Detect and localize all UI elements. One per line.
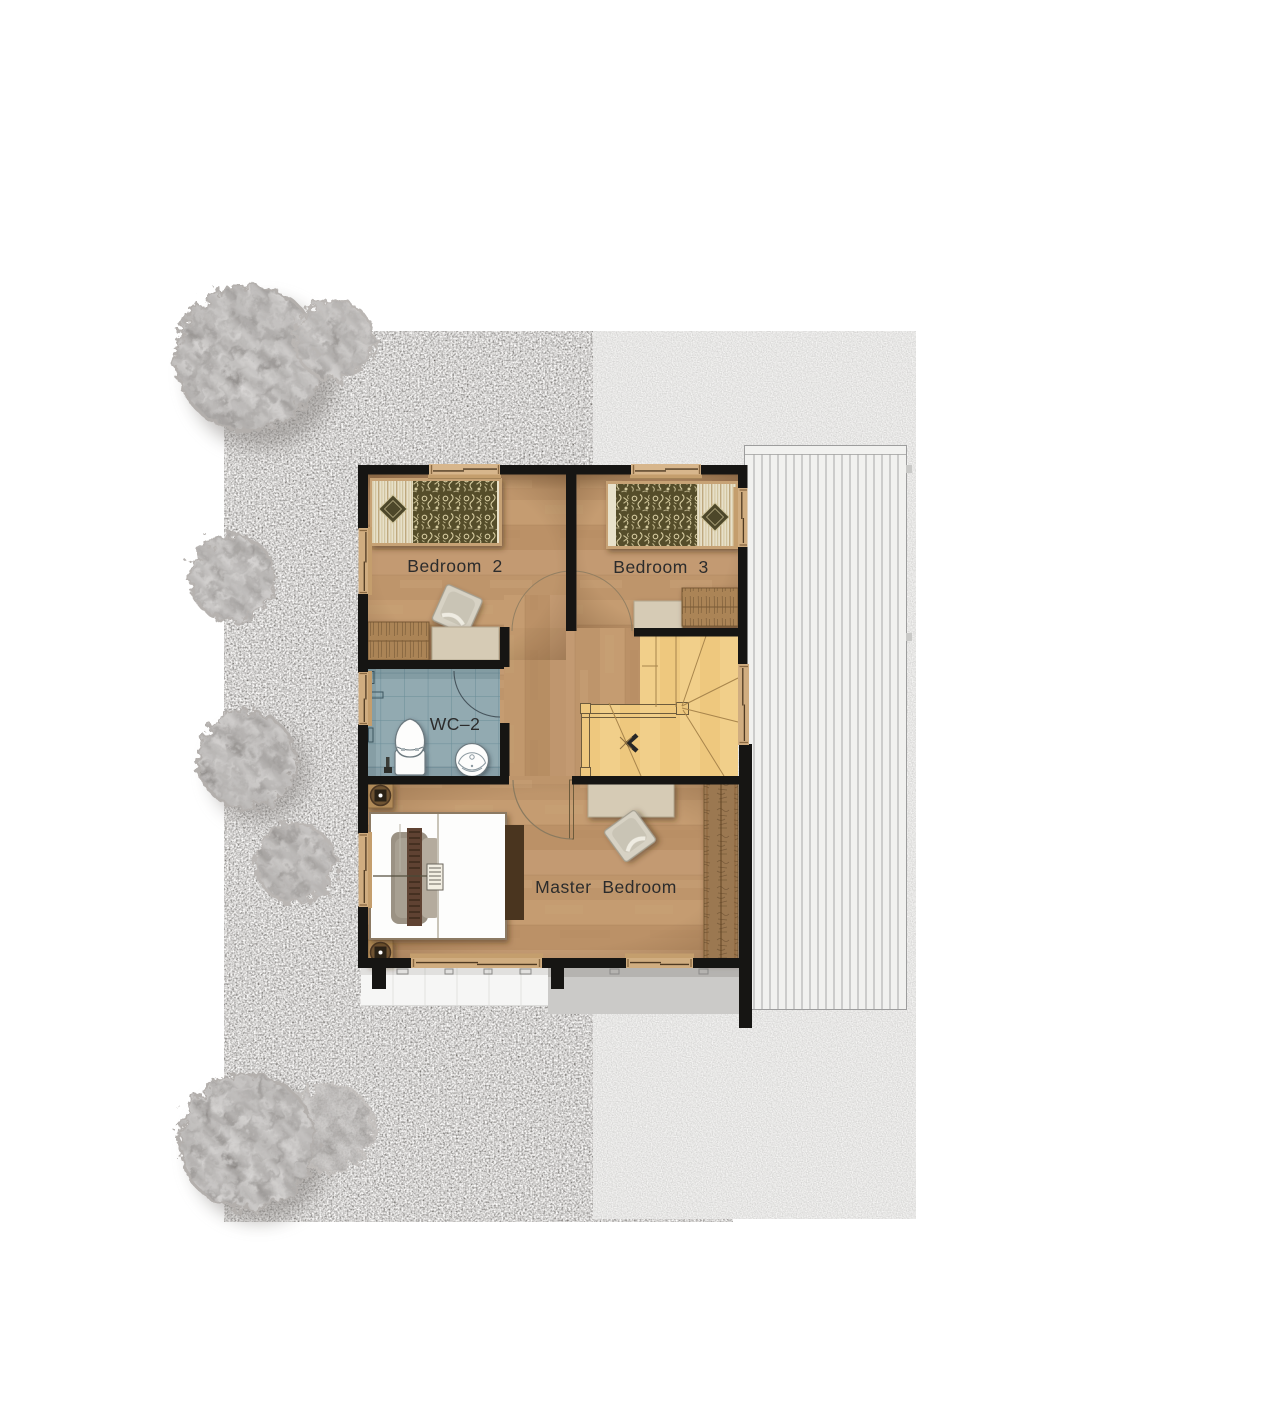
svg-text:Master Bedroom: Master Bedroom <box>535 877 677 897</box>
svg-text:Bedroom 3: Bedroom 3 <box>613 557 708 577</box>
svg-text:Bedroom 2: Bedroom 2 <box>407 556 502 576</box>
svg-text:WC–2: WC–2 <box>430 714 481 734</box>
